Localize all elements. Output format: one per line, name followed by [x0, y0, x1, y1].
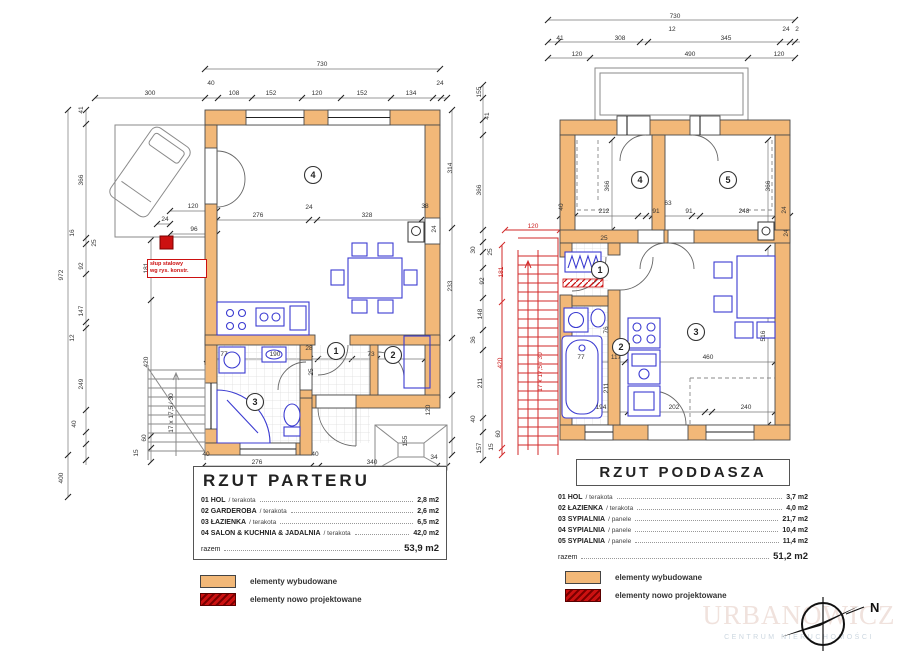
- dim-label: 40: [311, 451, 319, 458]
- porch-steps: [375, 425, 447, 470]
- schedule-row: 04 SYPIALNIA/ panele10,4 m2: [558, 526, 808, 534]
- dim-label: 40: [71, 420, 78, 428]
- dim-label: 25: [308, 368, 315, 376]
- dim-label: 120: [528, 223, 539, 230]
- dim-label: 40: [207, 80, 215, 87]
- plan-title-poddasze: RZUT PODDASZA: [576, 459, 790, 486]
- dim-label: 490: [685, 51, 696, 58]
- storey-below-outline: [595, 68, 748, 120]
- dim-label: 25: [487, 248, 494, 256]
- car-sketch: [107, 124, 193, 219]
- compass-needle: [781, 606, 859, 637]
- steel-column: [160, 236, 173, 249]
- room-number: 1: [333, 346, 338, 356]
- room-finish: / terakota: [249, 519, 276, 526]
- room-finish: / terakota: [324, 530, 351, 537]
- dim-label: 91: [652, 208, 660, 215]
- legend-new-label: elementy nowo projektowane: [615, 591, 727, 600]
- schedule-row: 05 SYPIALNIA/ panele11,4 m2: [558, 537, 808, 545]
- room-finish: / terakota: [606, 505, 633, 512]
- dim-label: 152: [357, 90, 368, 97]
- dim-label: 730: [317, 61, 328, 68]
- dim-label: 420: [497, 357, 504, 368]
- dim-label: 36: [470, 336, 477, 344]
- dim-label: 460: [703, 354, 714, 361]
- dining-set: [331, 243, 417, 313]
- dim-label: 249: [78, 378, 85, 389]
- dim-label: 12: [69, 334, 76, 342]
- dim-label: 38: [421, 203, 429, 210]
- swatch-existing: [565, 571, 601, 584]
- dotted-leader: [617, 493, 783, 499]
- dim-label: 41: [556, 35, 564, 42]
- boiler-poddasze: [758, 222, 774, 240]
- dotted-leader: [355, 529, 410, 535]
- room-finish: / panele: [608, 527, 631, 534]
- dim-label: 181: [498, 266, 505, 277]
- dim-label: 157: [476, 442, 483, 453]
- dim-label: 147: [78, 305, 85, 316]
- plan-poddasze: 7301224241308345120490120155413663025921…: [470, 13, 800, 463]
- room-number: 2: [618, 342, 623, 352]
- dim-label: 155: [402, 435, 409, 446]
- carport-outline: [115, 125, 205, 237]
- dim-label: 41: [484, 112, 491, 120]
- room-name: 04 SALON & KUCHNIA & JADALNIA: [201, 530, 321, 537]
- total-value: 51,2 m2: [773, 551, 808, 562]
- dotted-leader: [260, 496, 414, 502]
- dim-label: 308: [615, 35, 626, 42]
- dim-label: 248: [739, 208, 750, 215]
- room-finish: / panele: [608, 538, 631, 545]
- room-area: 42,0 m2: [413, 530, 439, 537]
- dim-label: 120: [312, 90, 323, 97]
- plan-parter: 7303004010815212015213424972413661625921…: [58, 61, 455, 500]
- dim-label: 730: [670, 13, 681, 20]
- dim-label: 211: [477, 377, 484, 388]
- room-area: 3,7 m2: [786, 494, 808, 501]
- legend-existing-label: elementy wybudowane: [250, 577, 337, 586]
- dim-label: 340: [367, 459, 378, 466]
- legend-new-label: elementy nowo projektowane: [250, 595, 362, 604]
- schedule-row: 02 GARDEROBA/ terakota2,6 m2: [201, 507, 439, 515]
- new-wall-strip: [563, 279, 603, 287]
- dim-label: 420: [143, 356, 150, 367]
- room-name: 03 SYPIALNIA: [558, 516, 605, 523]
- room-number: 5: [725, 175, 730, 185]
- swatch-new: [200, 593, 236, 606]
- schedule-row: 02 ŁAZIENKA/ terakota4,0 m2: [558, 504, 808, 512]
- room-finish: / terakota: [586, 494, 613, 501]
- room-number: 1: [597, 265, 602, 275]
- dim-label: 134: [406, 90, 417, 97]
- dim-label: 17 x 17,5 / 30: [537, 352, 544, 392]
- dim-label: 15: [488, 443, 495, 451]
- dim-label: 91: [685, 208, 693, 215]
- compass: N: [781, 597, 879, 651]
- dim-label: 25: [600, 235, 608, 242]
- dim-label: 30: [470, 246, 477, 254]
- room-name: 05 SYPIALNIA: [558, 538, 605, 545]
- legend-parter: elementy wybudowane elementy nowo projek…: [200, 570, 362, 611]
- room-name: 02 GARDEROBA: [201, 508, 257, 515]
- dotted-leader: [291, 507, 413, 513]
- dim-label: 24: [436, 80, 444, 87]
- room-area: 11,4 m2: [783, 538, 808, 545]
- boiler: [408, 222, 424, 242]
- room-area: 6,5 m2: [417, 519, 439, 526]
- dim-label: 63: [664, 200, 672, 207]
- dim-label: 25: [91, 239, 98, 247]
- dim-label: 300: [145, 90, 156, 97]
- dim-label: 366: [78, 174, 85, 185]
- schedule-row: 01 HOL/ terakota3,7 m2: [558, 493, 808, 501]
- swatch-existing: [200, 575, 236, 588]
- dim-label: 120: [774, 51, 785, 58]
- kitchen-unit: [217, 302, 309, 335]
- external-stair-parter: [148, 365, 205, 460]
- dim-label: 345: [721, 35, 732, 42]
- steel-column-note: słup stalowy wg rys. konstr.: [147, 259, 207, 278]
- dim-label: 202: [669, 404, 680, 411]
- total-label: razem: [201, 546, 220, 553]
- room-area: 2,8 m2: [417, 497, 439, 504]
- room-name: 04 SYPIALNIA: [558, 527, 605, 534]
- schedule-row: 01 HOL/ terakota2,8 m2: [201, 496, 439, 504]
- dim-label: 366: [476, 184, 483, 195]
- room-name: 01 HOL: [201, 497, 226, 504]
- dim-label: 40: [470, 415, 477, 423]
- room-name: 01 HOL: [558, 494, 583, 501]
- dim-label: 24: [783, 229, 790, 237]
- dim-label: 190: [270, 351, 281, 358]
- swatch-new: [565, 589, 601, 602]
- dim-label: 314: [447, 162, 454, 173]
- dotted-leader: [635, 526, 778, 532]
- schedule-row: 03 ŁAZIENKA/ terakota6,5 m2: [201, 518, 439, 526]
- external-stair-poddasze: [518, 238, 558, 455]
- room-number: 3: [252, 397, 257, 407]
- dotted-leader: [280, 518, 413, 524]
- room-finish: / terakota: [260, 508, 287, 515]
- dim-label: 24: [305, 204, 313, 211]
- room-number: 4: [637, 175, 642, 185]
- room-number: 2: [390, 350, 395, 360]
- hall-floor: [312, 345, 370, 443]
- dim-label: 40: [202, 451, 210, 458]
- schedule-row: 03 SYPIALNIA/ panele21,7 m2: [558, 515, 808, 523]
- dim-label: 17 x 17,5 / 30: [168, 393, 175, 433]
- total-label: razem: [558, 554, 577, 561]
- dim-label: 24: [782, 26, 790, 33]
- dim-label: 40: [558, 203, 565, 211]
- dim-label: 41: [78, 106, 85, 114]
- north-label: N: [870, 600, 879, 615]
- dim-label: 24: [431, 225, 438, 233]
- dim-label: 120: [188, 203, 199, 210]
- dim-label: 240: [741, 404, 752, 411]
- dim-label: 233: [447, 280, 454, 291]
- dim-label: 2: [795, 26, 799, 33]
- schedule-total: razem 53,9 m2: [201, 543, 439, 554]
- dim-label: 60: [141, 434, 148, 442]
- dim-label: 28: [305, 345, 313, 352]
- dim-label: 15: [133, 449, 140, 457]
- floorplan-drawing: 7303004010815212015213424972413661625921…: [0, 0, 900, 665]
- dim-label: 73: [367, 351, 375, 358]
- room-number: 3: [693, 327, 698, 337]
- dim-label: 194: [596, 404, 607, 411]
- room-name: 02 ŁAZIENKA: [558, 505, 603, 512]
- dim-label: 516: [760, 330, 767, 341]
- dim-label: 24: [161, 216, 169, 223]
- table-set-poddasze: [714, 256, 775, 338]
- schedule-total: razem 51,2 m2: [558, 551, 808, 562]
- dim-label: 77: [577, 354, 585, 361]
- dim-label: 92: [78, 262, 85, 270]
- dim-label: 152: [266, 90, 277, 97]
- bath-fixtures-poddasze: [562, 308, 605, 418]
- dim-label: 148: [477, 308, 484, 319]
- legend-poddasze: elementy wybudowane elementy nowo projek…: [565, 566, 727, 607]
- floorplan-sheet: URBANOWICZ CENTRUM NIERUCHOMOŚCI: [0, 0, 900, 665]
- dim-label: 366: [765, 180, 772, 191]
- schedule-parter: RZUT PARTERU 01 HOL/ terakota2,8 m202 GA…: [193, 466, 447, 560]
- dotted-leader: [635, 515, 778, 521]
- dim-label: 155: [476, 86, 483, 97]
- dim-label: 60: [495, 430, 502, 438]
- room-name: 03 ŁAZIENKA: [201, 519, 246, 526]
- room-number: 4: [310, 170, 315, 180]
- room-area: 21,7 m2: [782, 516, 808, 523]
- total-value: 53,9 m2: [404, 543, 439, 554]
- dim-label: 972: [58, 269, 65, 280]
- dim-label: 12: [668, 26, 676, 33]
- dim-label: 366: [604, 180, 611, 191]
- room-finish: / terakota: [229, 497, 256, 504]
- note-line: słup stalowy: [150, 261, 204, 268]
- dim-label: 328: [362, 212, 373, 219]
- kitchen-strip-poddasze: [628, 318, 660, 416]
- dotted-leader: [635, 537, 778, 543]
- room-area: 2,6 m2: [417, 508, 439, 515]
- schedule-poddasze: RZUT PODDASZA 01 HOL/ terakota3,7 m202 Ł…: [558, 459, 808, 562]
- dim-label: 276: [252, 459, 263, 466]
- dim-label: 212: [599, 208, 610, 215]
- legend-existing-label: elementy wybudowane: [615, 573, 702, 582]
- dim-label: 92: [479, 277, 486, 285]
- dim-label: 276: [253, 212, 264, 219]
- dim-label: 16: [69, 229, 76, 237]
- dim-label: 77: [220, 351, 228, 358]
- room-area: 4,0 m2: [786, 505, 808, 512]
- note-line: wg rys. konstr.: [150, 268, 204, 275]
- dim-label: 211: [603, 382, 610, 393]
- dotted-leader: [637, 504, 782, 510]
- schedule-row: 04 SALON & KUCHNIA & JADALNIA/ terakota4…: [201, 529, 439, 537]
- dim-label: 120: [425, 404, 432, 415]
- dim-label: 96: [190, 226, 198, 233]
- dim-label: 108: [229, 90, 240, 97]
- plan-title-parter: RZUT PARTERU: [203, 471, 439, 491]
- dim-label: 24: [781, 206, 788, 214]
- room-finish: / panele: [608, 516, 631, 523]
- dim-label: 400: [58, 472, 65, 483]
- dim-label: 76: [603, 326, 610, 334]
- dim-label: 34: [430, 454, 438, 461]
- room-area: 10,4 m2: [782, 527, 808, 534]
- dim-label: 120: [572, 51, 583, 58]
